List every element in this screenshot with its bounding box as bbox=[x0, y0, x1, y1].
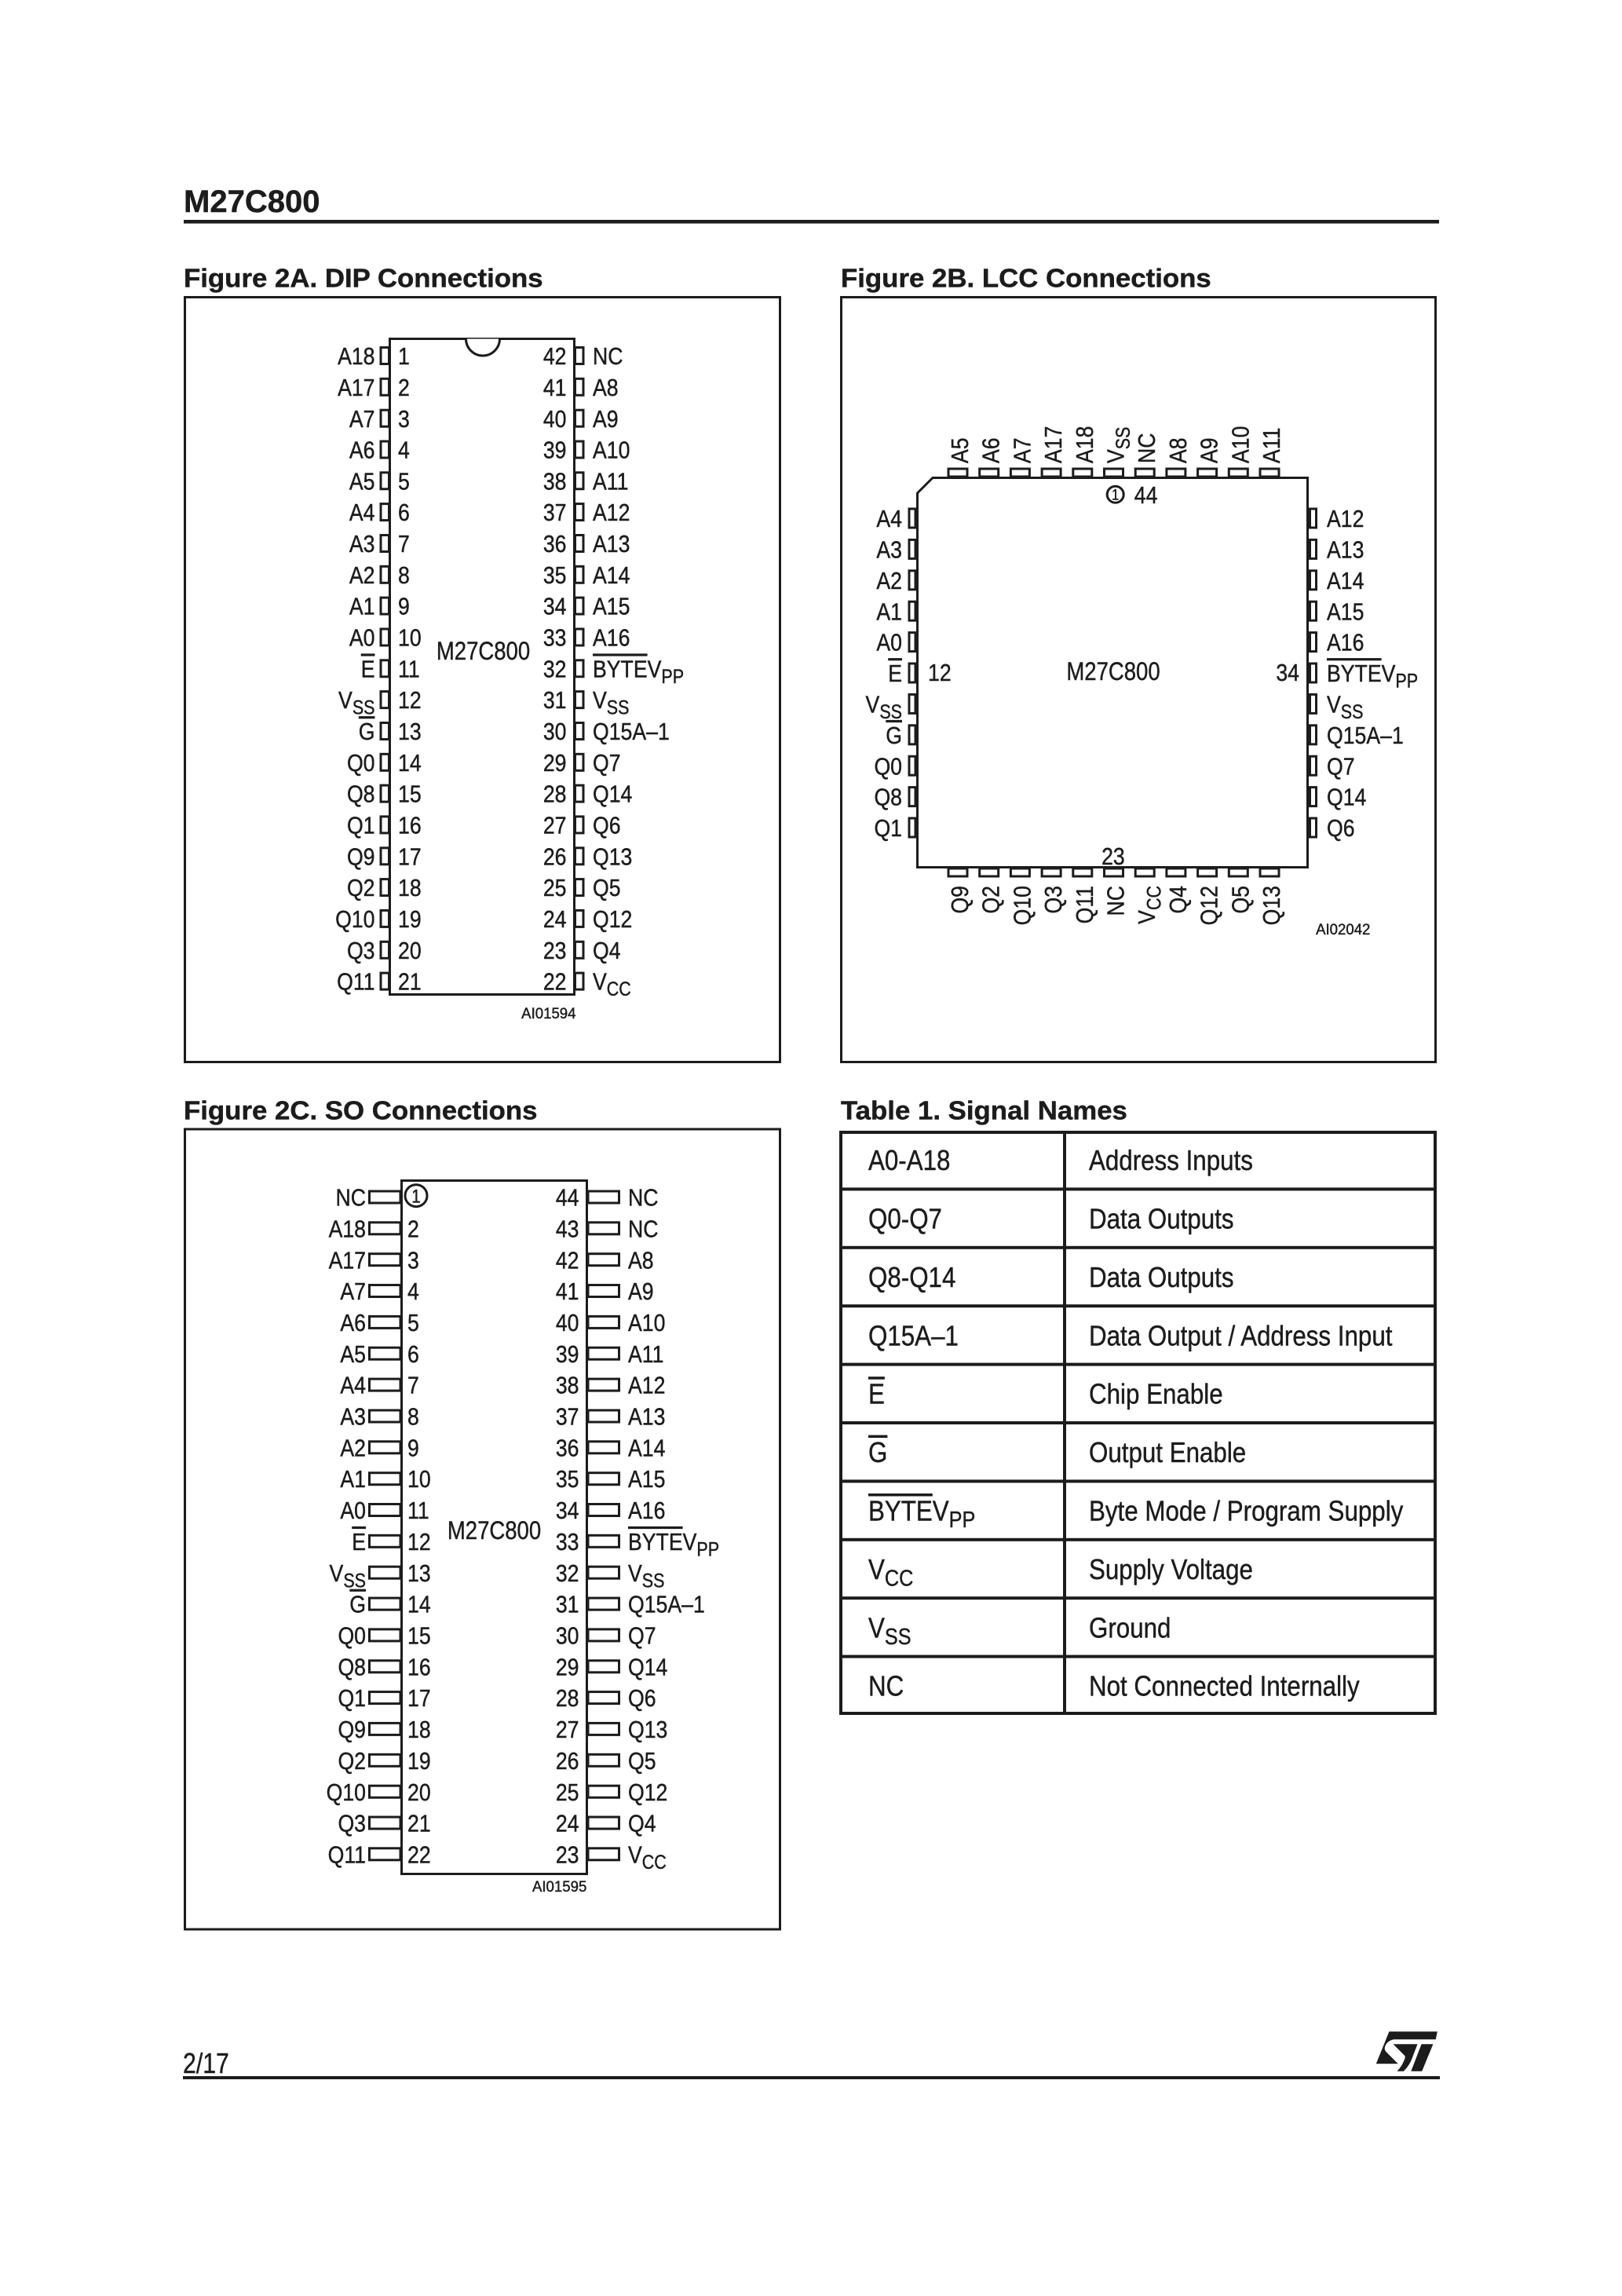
svg-text:36: 36 bbox=[543, 531, 567, 558]
svg-text:26: 26 bbox=[543, 844, 567, 871]
svg-text:17: 17 bbox=[398, 844, 422, 871]
svg-text:A10: A10 bbox=[628, 1310, 665, 1336]
svg-text:A17: A17 bbox=[329, 1247, 366, 1274]
svg-text:A0: A0 bbox=[340, 1497, 366, 1524]
svg-text:E: E bbox=[888, 660, 902, 687]
svg-text:Q7: Q7 bbox=[593, 750, 621, 777]
svg-text:A0-A18: A0-A18 bbox=[868, 1145, 950, 1177]
svg-text:36: 36 bbox=[556, 1435, 579, 1462]
svg-text:VSS: VSS bbox=[628, 1560, 664, 1592]
svg-text:15: 15 bbox=[407, 1623, 431, 1650]
svg-text:13: 13 bbox=[407, 1560, 431, 1587]
svg-text:Q12: Q12 bbox=[628, 1779, 667, 1806]
svg-text:Q7: Q7 bbox=[628, 1623, 656, 1650]
svg-text:A18: A18 bbox=[338, 343, 374, 370]
svg-text:17: 17 bbox=[407, 1685, 431, 1712]
svg-text:22: 22 bbox=[407, 1842, 431, 1869]
svg-text:AI02042: AI02042 bbox=[1316, 921, 1370, 938]
svg-text:NC: NC bbox=[1103, 886, 1130, 916]
svg-text:M27C800: M27C800 bbox=[437, 638, 530, 665]
svg-text:2/17: 2/17 bbox=[183, 2049, 229, 2080]
svg-text:20: 20 bbox=[407, 1779, 431, 1806]
svg-text:A5: A5 bbox=[349, 469, 375, 495]
svg-text:1: 1 bbox=[398, 343, 410, 370]
svg-text:A8: A8 bbox=[628, 1247, 654, 1274]
svg-text:VSS: VSS bbox=[866, 692, 902, 723]
svg-text:29: 29 bbox=[543, 750, 567, 777]
svg-text:3: 3 bbox=[407, 1247, 419, 1274]
svg-text:Q10: Q10 bbox=[327, 1779, 366, 1806]
svg-text:E: E bbox=[352, 1529, 366, 1556]
svg-text:24: 24 bbox=[543, 906, 567, 933]
svg-text:Q11: Q11 bbox=[337, 969, 374, 996]
svg-text:Chip Enable: Chip Enable bbox=[1089, 1379, 1223, 1411]
svg-text:44: 44 bbox=[556, 1185, 579, 1212]
svg-text:38: 38 bbox=[556, 1373, 579, 1399]
svg-text:Q13: Q13 bbox=[628, 1717, 667, 1743]
svg-text:A18: A18 bbox=[1072, 426, 1098, 463]
svg-text:22: 22 bbox=[543, 969, 567, 996]
svg-text:M27C800: M27C800 bbox=[1066, 658, 1160, 686]
svg-text:Q8: Q8 bbox=[338, 1654, 366, 1680]
svg-text:Q14: Q14 bbox=[1327, 784, 1366, 811]
svg-text:Q8-Q14: Q8-Q14 bbox=[868, 1262, 955, 1294]
svg-text:31: 31 bbox=[543, 687, 567, 714]
svg-text:NC: NC bbox=[335, 1185, 366, 1212]
svg-text:Q3: Q3 bbox=[347, 938, 375, 964]
svg-text:39: 39 bbox=[543, 437, 567, 464]
svg-text:A11: A11 bbox=[1259, 428, 1285, 463]
svg-text:Data Output / Address Input: Data Output / Address Input bbox=[1089, 1320, 1393, 1352]
svg-text:Q8: Q8 bbox=[874, 784, 902, 811]
svg-text:10: 10 bbox=[398, 625, 422, 652]
svg-text:A7: A7 bbox=[1010, 437, 1036, 463]
svg-text:41: 41 bbox=[556, 1278, 579, 1305]
svg-text:42: 42 bbox=[556, 1247, 579, 1274]
svg-text:6: 6 bbox=[407, 1341, 419, 1368]
svg-text:NC: NC bbox=[868, 1671, 904, 1703]
svg-text:6: 6 bbox=[398, 499, 410, 526]
svg-text:A1: A1 bbox=[340, 1466, 366, 1493]
svg-text:A1: A1 bbox=[876, 598, 902, 625]
svg-text:42: 42 bbox=[543, 343, 567, 370]
svg-text:Q6: Q6 bbox=[593, 813, 621, 839]
svg-text:38: 38 bbox=[543, 469, 567, 495]
svg-text:BYTEVPP: BYTEVPP bbox=[593, 656, 684, 688]
svg-text:15: 15 bbox=[398, 781, 422, 808]
svg-text:3: 3 bbox=[398, 406, 410, 433]
svg-text:G: G bbox=[359, 718, 375, 745]
svg-text:23: 23 bbox=[1101, 843, 1125, 870]
svg-text:A15: A15 bbox=[593, 594, 630, 620]
svg-text:A9: A9 bbox=[1196, 437, 1223, 463]
svg-text:29: 29 bbox=[556, 1654, 579, 1680]
svg-text:24: 24 bbox=[556, 1811, 579, 1837]
svg-text:Q11: Q11 bbox=[1072, 886, 1098, 923]
svg-text:A9: A9 bbox=[628, 1278, 654, 1305]
svg-text:9: 9 bbox=[407, 1435, 419, 1462]
svg-text:BYTEVPP: BYTEVPP bbox=[1327, 660, 1418, 692]
svg-text:Q2: Q2 bbox=[338, 1748, 366, 1775]
svg-text:A5: A5 bbox=[947, 437, 974, 463]
svg-text:Q3: Q3 bbox=[1040, 886, 1067, 914]
svg-text:Q15A–1: Q15A–1 bbox=[628, 1592, 705, 1618]
svg-text:A7: A7 bbox=[349, 406, 375, 433]
svg-text:16: 16 bbox=[398, 813, 422, 839]
svg-text:A5: A5 bbox=[340, 1341, 366, 1368]
svg-text:5: 5 bbox=[407, 1310, 419, 1336]
svg-text:33: 33 bbox=[556, 1529, 579, 1556]
svg-text:NC: NC bbox=[628, 1216, 659, 1243]
svg-text:25: 25 bbox=[556, 1779, 579, 1806]
svg-text:A6: A6 bbox=[349, 437, 375, 464]
svg-text:37: 37 bbox=[556, 1404, 579, 1431]
svg-text:BYTEVPP: BYTEVPP bbox=[628, 1529, 719, 1560]
svg-text:1: 1 bbox=[1112, 486, 1119, 503]
svg-text:G: G bbox=[886, 722, 902, 749]
svg-text:AI01594: AI01594 bbox=[521, 1005, 575, 1022]
svg-text:Q15A–1: Q15A–1 bbox=[868, 1320, 959, 1352]
svg-text:10: 10 bbox=[407, 1466, 431, 1493]
svg-text:Q11: Q11 bbox=[328, 1842, 366, 1869]
svg-text:G: G bbox=[349, 1592, 366, 1618]
svg-text:Q5: Q5 bbox=[628, 1748, 656, 1775]
svg-text:Figure 2A. DIP Connections: Figure 2A. DIP Connections bbox=[184, 264, 543, 293]
svg-text:Q12: Q12 bbox=[1196, 886, 1223, 925]
svg-text:E: E bbox=[868, 1379, 885, 1411]
svg-text:33: 33 bbox=[543, 625, 567, 652]
svg-text:A17: A17 bbox=[1040, 426, 1067, 463]
svg-text:40: 40 bbox=[556, 1310, 579, 1336]
svg-text:Q9: Q9 bbox=[338, 1717, 366, 1743]
svg-text:VSS: VSS bbox=[868, 1612, 911, 1649]
svg-text:Q12: Q12 bbox=[593, 906, 632, 933]
svg-text:Table 1. Signal Names: Table 1. Signal Names bbox=[841, 1097, 1127, 1126]
svg-text:A3: A3 bbox=[349, 531, 375, 558]
svg-text:32: 32 bbox=[543, 656, 567, 683]
svg-text:M27C800: M27C800 bbox=[448, 1517, 541, 1545]
svg-text:A14: A14 bbox=[628, 1435, 665, 1462]
svg-text:35: 35 bbox=[543, 562, 567, 589]
svg-text:Q2: Q2 bbox=[978, 886, 1005, 914]
svg-text:Q0: Q0 bbox=[874, 753, 902, 780]
svg-text:Q15A–1: Q15A–1 bbox=[1327, 722, 1404, 749]
svg-text:11: 11 bbox=[398, 656, 420, 683]
svg-text:A8: A8 bbox=[1165, 437, 1192, 463]
svg-text:A10: A10 bbox=[593, 437, 630, 464]
svg-text:A6: A6 bbox=[340, 1310, 366, 1336]
svg-text:A12: A12 bbox=[593, 499, 630, 526]
svg-text:A12: A12 bbox=[1327, 506, 1364, 532]
svg-text:Q6: Q6 bbox=[1327, 815, 1355, 842]
svg-text:7: 7 bbox=[407, 1373, 419, 1399]
svg-text:Q13: Q13 bbox=[593, 844, 632, 871]
svg-text:Q0: Q0 bbox=[338, 1623, 366, 1650]
svg-text:27: 27 bbox=[556, 1717, 579, 1743]
svg-text:Q0-Q7: Q0-Q7 bbox=[868, 1203, 942, 1235]
svg-text:32: 32 bbox=[556, 1560, 579, 1587]
svg-text:VCC: VCC bbox=[628, 1842, 667, 1874]
svg-text:A16: A16 bbox=[593, 625, 630, 652]
svg-text:A18: A18 bbox=[329, 1216, 366, 1243]
svg-text:Supply Voltage: Supply Voltage bbox=[1089, 1554, 1253, 1586]
svg-text:A2: A2 bbox=[876, 568, 902, 594]
svg-text:34: 34 bbox=[1276, 660, 1299, 686]
svg-text:A3: A3 bbox=[340, 1404, 366, 1431]
svg-text:A0: A0 bbox=[876, 630, 902, 656]
svg-text:Q14: Q14 bbox=[628, 1654, 667, 1680]
svg-text:Q10: Q10 bbox=[335, 906, 374, 933]
svg-text:Q9: Q9 bbox=[347, 844, 375, 871]
svg-text:44: 44 bbox=[1134, 482, 1158, 509]
svg-text:Q5: Q5 bbox=[1227, 886, 1254, 914]
svg-text:BYTEVPP: BYTEVPP bbox=[868, 1495, 975, 1532]
svg-text:NC: NC bbox=[593, 343, 623, 370]
svg-text:34: 34 bbox=[556, 1497, 579, 1524]
svg-text:VSS: VSS bbox=[593, 687, 629, 718]
svg-text:VSS: VSS bbox=[330, 1560, 366, 1592]
svg-text:Q4: Q4 bbox=[1165, 886, 1192, 914]
svg-text:30: 30 bbox=[543, 718, 567, 745]
svg-text:8: 8 bbox=[398, 562, 410, 589]
svg-text:A4: A4 bbox=[876, 506, 902, 532]
svg-text:14: 14 bbox=[398, 750, 422, 777]
svg-text:11: 11 bbox=[407, 1497, 429, 1524]
svg-text:Q2: Q2 bbox=[347, 875, 375, 901]
svg-text:A13: A13 bbox=[628, 1404, 665, 1431]
svg-text:8: 8 bbox=[407, 1404, 419, 1431]
svg-text:20: 20 bbox=[398, 938, 422, 964]
svg-text:NC: NC bbox=[1134, 433, 1160, 463]
svg-text:28: 28 bbox=[543, 781, 567, 808]
svg-text:Figure 2C. SO Connections: Figure 2C. SO Connections bbox=[184, 1097, 538, 1126]
svg-text:4: 4 bbox=[407, 1278, 419, 1305]
svg-text:E: E bbox=[361, 656, 375, 683]
svg-text:Q13: Q13 bbox=[1259, 886, 1285, 925]
svg-text:Data Outputs: Data Outputs bbox=[1089, 1262, 1234, 1294]
svg-text:19: 19 bbox=[407, 1748, 431, 1775]
svg-text:M27C800: M27C800 bbox=[184, 185, 320, 219]
svg-text:NC: NC bbox=[628, 1185, 659, 1212]
svg-text:VCC: VCC bbox=[593, 969, 631, 1000]
svg-text:Ground: Ground bbox=[1089, 1612, 1171, 1644]
svg-text:A3: A3 bbox=[876, 537, 902, 564]
svg-text:27: 27 bbox=[543, 813, 567, 839]
svg-text:VSS: VSS bbox=[1103, 427, 1134, 463]
svg-text:Q4: Q4 bbox=[628, 1811, 656, 1837]
svg-text:A7: A7 bbox=[340, 1278, 366, 1305]
svg-text:23: 23 bbox=[556, 1842, 579, 1869]
svg-text:VSS: VSS bbox=[1327, 692, 1363, 723]
svg-text:23: 23 bbox=[543, 938, 567, 964]
svg-text:41: 41 bbox=[543, 375, 567, 401]
svg-text:Q3: Q3 bbox=[338, 1811, 366, 1837]
svg-text:A14: A14 bbox=[1327, 568, 1364, 594]
svg-text:A2: A2 bbox=[349, 562, 375, 589]
svg-text:A13: A13 bbox=[593, 531, 630, 558]
svg-text:Q15A–1: Q15A–1 bbox=[593, 718, 670, 745]
svg-text:14: 14 bbox=[407, 1592, 431, 1618]
svg-text:VCC: VCC bbox=[1134, 886, 1165, 924]
svg-text:39: 39 bbox=[556, 1341, 579, 1368]
svg-text:Address Inputs: Address Inputs bbox=[1089, 1145, 1253, 1177]
svg-text:VSS: VSS bbox=[338, 687, 374, 718]
svg-text:26: 26 bbox=[556, 1748, 579, 1775]
svg-text:Q1: Q1 bbox=[338, 1685, 366, 1712]
svg-text:43: 43 bbox=[556, 1216, 579, 1243]
svg-text:Q7: Q7 bbox=[1327, 753, 1355, 780]
svg-text:12: 12 bbox=[398, 687, 422, 714]
svg-text:5: 5 bbox=[398, 469, 410, 495]
svg-text:21: 21 bbox=[398, 969, 422, 996]
svg-text:7: 7 bbox=[398, 531, 410, 558]
svg-text:VCC: VCC bbox=[868, 1554, 913, 1591]
svg-text:A1: A1 bbox=[349, 594, 375, 620]
svg-text:4: 4 bbox=[398, 437, 410, 464]
svg-text:2: 2 bbox=[398, 375, 410, 401]
svg-text:Q1: Q1 bbox=[347, 813, 375, 839]
svg-text:18: 18 bbox=[407, 1717, 431, 1743]
svg-text:Q9: Q9 bbox=[947, 886, 974, 914]
svg-text:2: 2 bbox=[407, 1216, 419, 1243]
svg-text:A10: A10 bbox=[1227, 426, 1254, 463]
svg-text:A6: A6 bbox=[978, 437, 1005, 463]
svg-text:A13: A13 bbox=[1327, 537, 1364, 564]
svg-text:18: 18 bbox=[398, 875, 422, 901]
svg-text:A16: A16 bbox=[628, 1497, 665, 1524]
svg-text:A8: A8 bbox=[593, 375, 619, 401]
svg-text:30: 30 bbox=[556, 1623, 579, 1650]
svg-text:Figure 2B. LCC Connections: Figure 2B. LCC Connections bbox=[841, 264, 1211, 293]
svg-text:25: 25 bbox=[543, 875, 567, 901]
svg-text:G: G bbox=[868, 1437, 887, 1469]
svg-text:A15: A15 bbox=[1327, 598, 1364, 625]
svg-text:A15: A15 bbox=[628, 1466, 665, 1493]
svg-text:Data Outputs: Data Outputs bbox=[1089, 1203, 1234, 1235]
svg-text:Q14: Q14 bbox=[593, 781, 632, 808]
svg-text:19: 19 bbox=[398, 906, 422, 933]
svg-text:Q4: Q4 bbox=[593, 938, 621, 964]
svg-text:Q10: Q10 bbox=[1010, 886, 1036, 925]
svg-text:A9: A9 bbox=[593, 406, 619, 433]
svg-text:A16: A16 bbox=[1327, 630, 1364, 656]
svg-text:A4: A4 bbox=[340, 1373, 366, 1399]
svg-text:12: 12 bbox=[407, 1529, 431, 1556]
svg-text:Byte Mode / Program Supply: Byte Mode / Program Supply bbox=[1089, 1495, 1403, 1527]
svg-text:A17: A17 bbox=[338, 375, 374, 401]
svg-text:Q6: Q6 bbox=[628, 1685, 656, 1712]
svg-text:34: 34 bbox=[543, 594, 567, 620]
svg-text:1: 1 bbox=[411, 1186, 420, 1207]
svg-text:Not Connected Internally: Not Connected Internally bbox=[1089, 1671, 1360, 1703]
svg-text:A11: A11 bbox=[593, 469, 628, 495]
svg-text:AI01595: AI01595 bbox=[532, 1878, 586, 1895]
svg-text:A14: A14 bbox=[593, 562, 630, 589]
svg-text:Q1: Q1 bbox=[874, 815, 902, 842]
svg-text:31: 31 bbox=[556, 1592, 579, 1618]
svg-text:12: 12 bbox=[928, 660, 952, 686]
svg-text:Q5: Q5 bbox=[593, 875, 621, 901]
svg-text:28: 28 bbox=[556, 1685, 579, 1712]
svg-text:A4: A4 bbox=[349, 499, 375, 526]
svg-text:35: 35 bbox=[556, 1466, 579, 1493]
svg-text:A11: A11 bbox=[628, 1341, 663, 1368]
svg-text:A12: A12 bbox=[628, 1373, 665, 1399]
svg-text:A2: A2 bbox=[340, 1435, 366, 1462]
svg-text:13: 13 bbox=[398, 718, 422, 745]
svg-text:Q8: Q8 bbox=[347, 781, 375, 808]
svg-text:37: 37 bbox=[543, 499, 567, 526]
svg-text:21: 21 bbox=[407, 1811, 431, 1837]
svg-text:9: 9 bbox=[398, 594, 410, 620]
svg-text:Output Enable: Output Enable bbox=[1089, 1437, 1246, 1469]
svg-text:A0: A0 bbox=[349, 625, 375, 652]
svg-text:40: 40 bbox=[543, 406, 567, 433]
svg-text:Q0: Q0 bbox=[347, 750, 375, 777]
svg-text:16: 16 bbox=[407, 1654, 431, 1680]
